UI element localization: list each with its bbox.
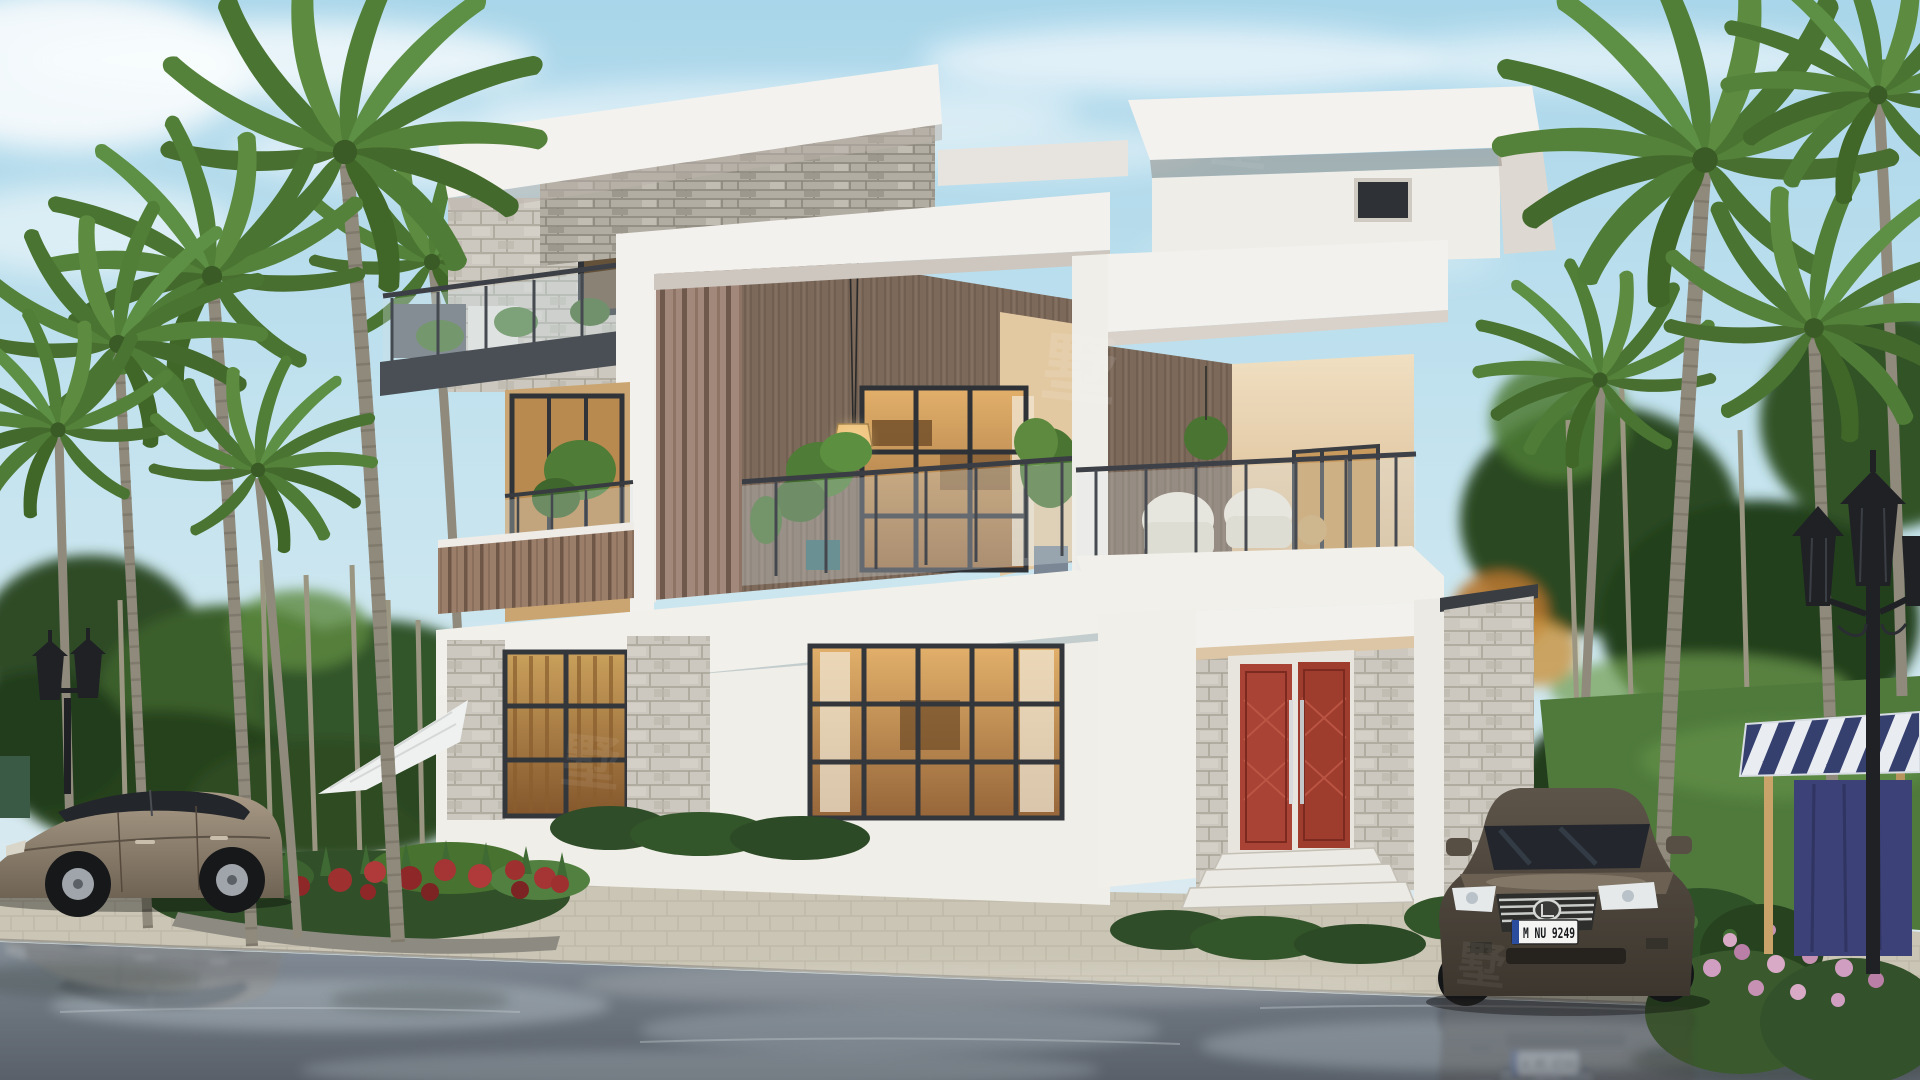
right-balcony-slab	[1076, 546, 1444, 614]
door-handle-left	[1289, 700, 1293, 804]
lamp-pole	[1866, 560, 1880, 974]
side-mirror-right	[1666, 836, 1692, 854]
headlight-projector	[1466, 892, 1478, 904]
garden-fence	[0, 756, 30, 818]
porch-pier-right	[1414, 598, 1444, 914]
awning-stand	[1740, 712, 1920, 956]
right-tower-window	[1354, 178, 1412, 222]
stone-pillar-b	[627, 636, 710, 818]
front-wheel	[45, 851, 111, 917]
plate-number: M NU 9249	[1523, 926, 1575, 942]
windshield	[1484, 824, 1650, 870]
lamp-lantern	[36, 654, 64, 700]
watermark-text: 墅	[1038, 324, 1121, 417]
door-handle-right	[1300, 700, 1304, 804]
villa-render-canvas: M NU 9249 墅 墅 墅 墅	[0, 0, 1920, 1080]
headlight-projector	[1622, 890, 1634, 902]
side-mirror-left	[1446, 838, 1472, 856]
villa-render: M NU 9249 墅 墅 墅 墅	[0, 0, 1920, 1080]
door-leaf-left	[1240, 664, 1292, 850]
license-plate: M NU 9249	[1512, 920, 1578, 944]
door-handle	[135, 840, 155, 844]
fog-light-right	[1646, 938, 1668, 949]
louver-screen	[654, 240, 742, 600]
plate-euro-band	[1512, 920, 1519, 944]
curtain	[820, 652, 850, 812]
window-b	[810, 646, 1062, 818]
door-leaf-right	[1298, 662, 1350, 848]
rear-wheel	[199, 847, 265, 913]
lamp-lantern	[74, 652, 102, 698]
lower-intake	[1506, 948, 1626, 964]
lamp-pole	[64, 698, 71, 794]
porch-pier-left	[1098, 608, 1196, 888]
watermark-text: 墅	[559, 726, 624, 800]
watermark-text: 墅	[1209, 109, 1271, 179]
door-handle	[210, 836, 228, 840]
awning-post	[1764, 770, 1773, 954]
curtain	[1020, 650, 1054, 812]
striped-awning	[1740, 712, 1920, 776]
watermark-text: 墅	[1455, 936, 1509, 997]
